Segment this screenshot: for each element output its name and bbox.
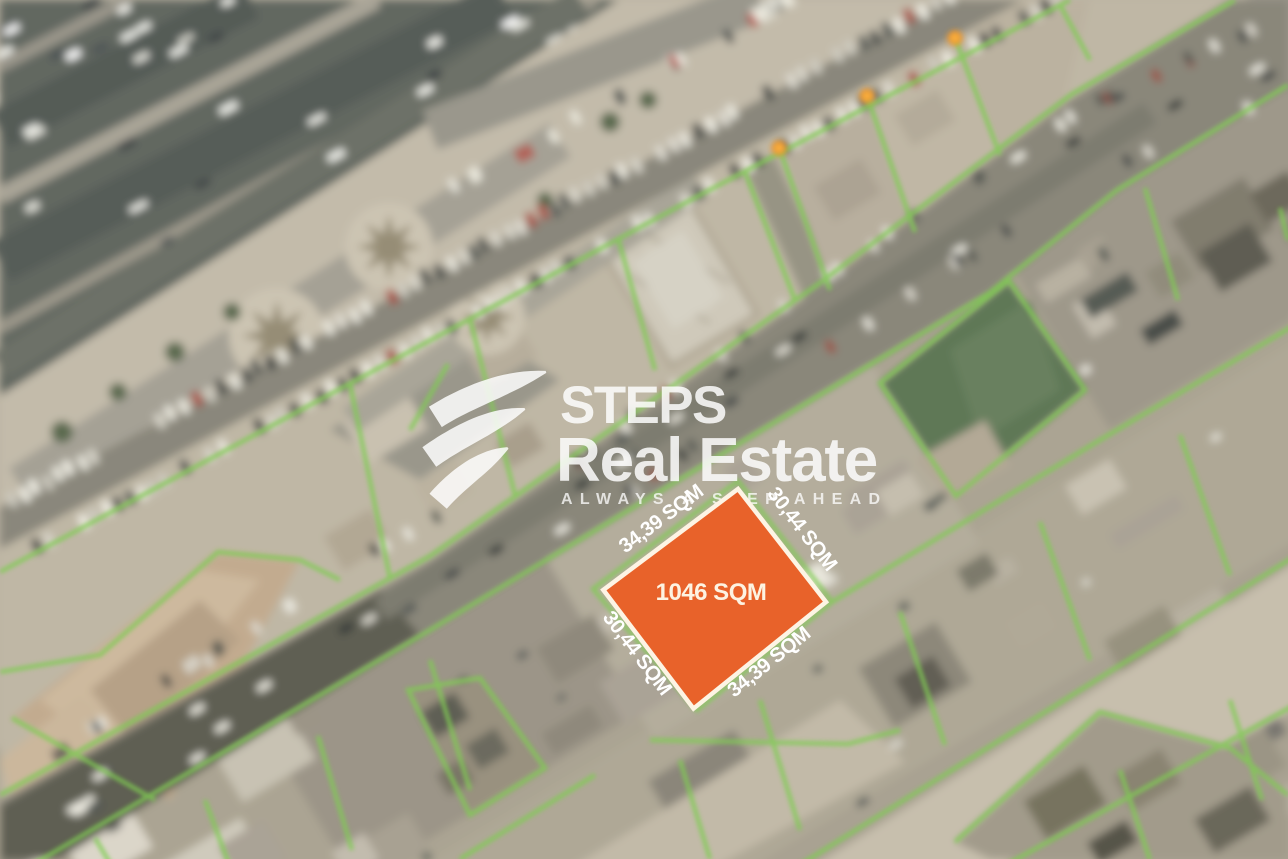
svg-text:1046 SQM: 1046 SQM (656, 579, 767, 606)
svg-text:Real Estate: Real Estate (556, 426, 877, 495)
